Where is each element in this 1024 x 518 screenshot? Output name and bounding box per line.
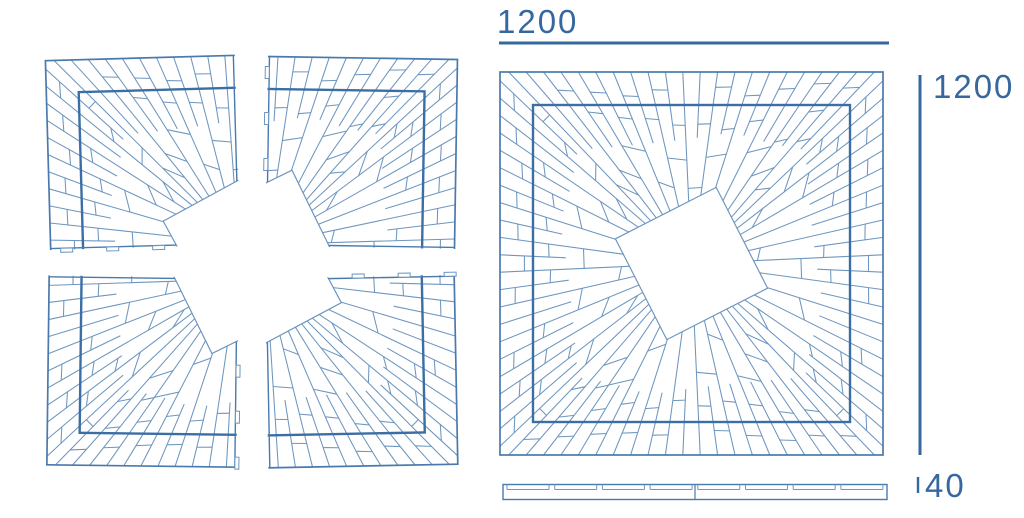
height-dimension-label: 1200 bbox=[933, 68, 1014, 105]
assembled-grate-view bbox=[500, 72, 883, 455]
joint-tab bbox=[398, 273, 410, 277]
width-dimension-label: 1200 bbox=[497, 3, 578, 40]
assembled-grate-pattern bbox=[500, 72, 883, 455]
dimension-annotations: 1200 1200 40 bbox=[497, 3, 1014, 504]
technical-drawing-page: 1200 1200 40 bbox=[0, 0, 1024, 518]
joint-tab bbox=[236, 365, 240, 377]
joint-tab bbox=[264, 158, 268, 170]
joint-tab bbox=[352, 274, 364, 278]
thickness-dimension-label: 40 bbox=[925, 467, 966, 504]
grate-technical-drawing: 1200 1200 40 bbox=[0, 0, 1024, 518]
joint-tab bbox=[444, 272, 456, 276]
exploded-grate-view bbox=[45, 50, 459, 471]
side-profile-view bbox=[503, 485, 887, 500]
joint-tab bbox=[153, 245, 165, 249]
joint-tab bbox=[235, 411, 239, 423]
joint-tab bbox=[61, 248, 73, 252]
quarter-panel-bottom-right bbox=[75, 88, 460, 471]
profile-strip bbox=[503, 485, 887, 500]
quarter-panel-bottom-left bbox=[47, 89, 428, 472]
joint-tab bbox=[235, 457, 239, 469]
joint-tab bbox=[107, 247, 119, 251]
joint-tab bbox=[265, 66, 269, 78]
joint-tab bbox=[264, 112, 268, 124]
